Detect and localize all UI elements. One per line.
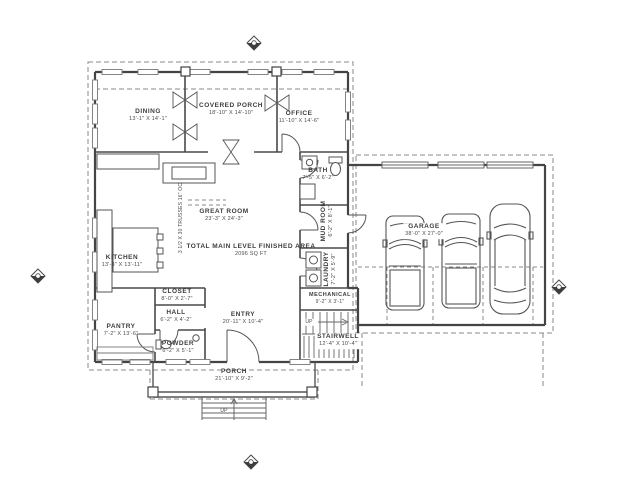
french-door-symbols: [173, 92, 289, 164]
kitchen-casework: [97, 154, 163, 292]
powder-fixtures: [156, 335, 199, 349]
entry-steps: [202, 397, 266, 420]
fireplace: [163, 163, 215, 183]
bath-fixtures: [300, 156, 342, 199]
section-marker-top-icon: [247, 36, 261, 50]
interior-walls: [95, 72, 358, 362]
vehicle-truck-1: [383, 216, 427, 310]
section-marker-left-icon: [31, 269, 45, 283]
floor-plan-page: DINING 13'-1" X 14'-1" COVERED PORCH 18'…: [0, 0, 640, 494]
vehicle-truck-2: [439, 214, 483, 308]
floor-plan-drawing: [0, 0, 640, 494]
section-marker-bottom-icon: [244, 455, 258, 469]
garage-door-symbols: [382, 162, 533, 168]
front-porch-structure: [153, 362, 315, 397]
stairwell-treads: [302, 312, 356, 358]
section-marker-right-icon: [552, 280, 566, 294]
laundry-appliances: [306, 252, 321, 286]
porch-columns: [148, 67, 317, 397]
vehicle-suv: [487, 204, 533, 314]
ceiling-break-dashed-lines: [188, 200, 226, 205]
